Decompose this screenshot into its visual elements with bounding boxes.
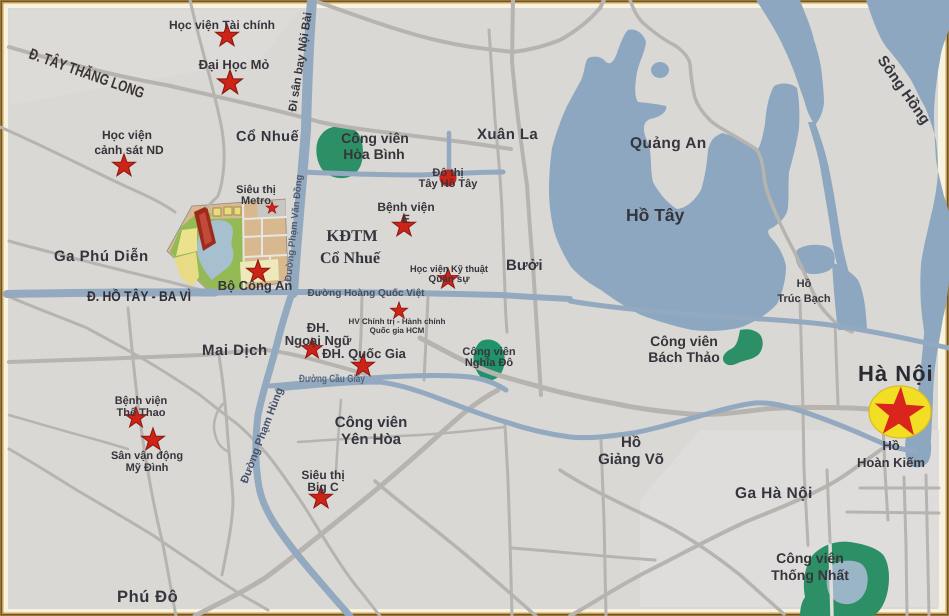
svg-text:Ga Hà Nội: Ga Hà Nội — [735, 485, 813, 502]
svg-text:Công viên: Công viên — [776, 550, 844, 566]
svg-text:Bộ Công An: Bộ Công An — [218, 278, 293, 293]
svg-text:Giảng Võ: Giảng Võ — [598, 451, 664, 468]
svg-text:Đường Hoàng Quốc Việt: Đường Hoàng Quốc Việt — [308, 288, 426, 299]
svg-text:Cổ Nhuế: Cổ Nhuế — [320, 250, 381, 267]
svg-text:Đường Cầu Giấy: Đường Cầu Giấy — [299, 373, 365, 385]
svg-text:KĐTM: KĐTM — [326, 226, 378, 245]
svg-text:Mỹ Đình: Mỹ Đình — [126, 462, 169, 474]
svg-text:Công viên: Công viên — [335, 414, 408, 431]
svg-text:Sân vận động: Sân vận động — [111, 450, 183, 462]
svg-text:Hòa Bình: Hòa Bình — [343, 146, 404, 162]
svg-text:E: E — [402, 212, 410, 226]
svg-text:Thể Thao: Thể Thao — [117, 407, 166, 419]
svg-text:Phú Đô: Phú Đô — [117, 588, 178, 606]
svg-text:Quảng An: Quảng An — [630, 135, 707, 152]
svg-text:Công viên: Công viên — [650, 333, 718, 349]
svg-text:Nghĩa Đô: Nghĩa Đô — [465, 357, 514, 369]
svg-text:Hồ Tây: Hồ Tây — [626, 205, 685, 225]
svg-text:Hồ: Hồ — [621, 434, 641, 451]
svg-text:Quốc gia HCM: Quốc gia HCM — [370, 326, 425, 335]
svg-text:Hà Nội: Hà Nội — [858, 361, 934, 386]
svg-text:cảnh sát ND: cảnh sát ND — [94, 143, 164, 157]
svg-text:Bưởi: Bưởi — [506, 257, 543, 274]
svg-text:Tây Hồ Tây: Tây Hồ Tây — [419, 178, 479, 190]
svg-text:Mai Dịch: Mai Dịch — [202, 342, 268, 359]
svg-text:Học viện Tài chính: Học viện Tài chính — [169, 18, 275, 32]
svg-text:Công viên: Công viên — [341, 130, 409, 146]
svg-text:Yên Hòa: Yên Hòa — [341, 431, 402, 448]
svg-text:Cổ Nhuế: Cổ Nhuế — [236, 129, 300, 145]
svg-text:ĐH. Quốc Gia: ĐH. Quốc Gia — [322, 346, 407, 361]
svg-text:HV Chính trị - Hành chính: HV Chính trị - Hành chính — [349, 317, 446, 326]
svg-text:Bệnh viện: Bệnh viện — [115, 395, 168, 407]
svg-text:Hồ: Hồ — [797, 278, 812, 290]
svg-text:Big C: Big C — [307, 480, 339, 494]
svg-text:Xuân La: Xuân La — [477, 126, 538, 143]
svg-text:Hồ: Hồ — [882, 438, 899, 453]
svg-text:Đại Học Mỏ: Đại Học Mỏ — [199, 57, 270, 72]
svg-text:Trúc Bạch: Trúc Bạch — [777, 293, 830, 305]
svg-text:Thống Nhất: Thống Nhất — [771, 567, 849, 583]
svg-text:Metro: Metro — [241, 195, 271, 207]
svg-text:Bách Thảo: Bách Thảo — [648, 349, 720, 365]
svg-text:Đ. HỒ TÂY - BA VÌ: Đ. HỒ TÂY - BA VÌ — [87, 288, 191, 304]
svg-text:Quân sự: Quân sự — [428, 274, 470, 285]
svg-text:Ga Phú Diễn: Ga Phú Diễn — [54, 247, 149, 265]
svg-text:Học viện: Học viện — [102, 128, 152, 142]
svg-text:Hoàn Kiếm: Hoàn Kiếm — [857, 455, 925, 470]
